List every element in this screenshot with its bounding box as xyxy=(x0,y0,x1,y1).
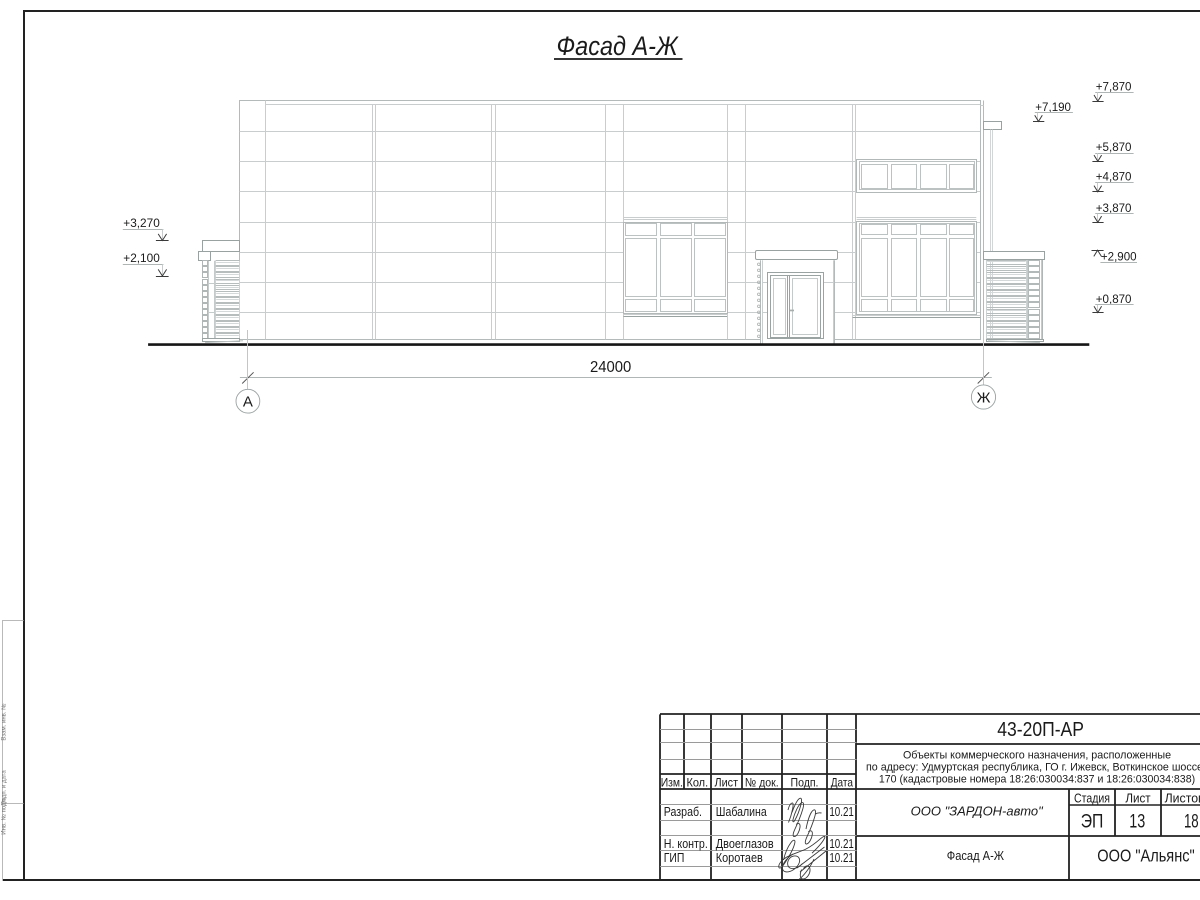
svg-text:+7,870: +7,870 xyxy=(1096,79,1132,93)
svg-text:170 (кадастровые номера 18:26:: 170 (кадастровые номера 18:26:030034:837… xyxy=(879,774,1195,786)
svg-text:Дата: Дата xyxy=(831,775,853,789)
svg-text:+2,100: +2,100 xyxy=(123,251,160,265)
svg-text:Листов: Листов xyxy=(1165,791,1200,806)
svg-text:Коротаев: Коротаев xyxy=(716,850,763,865)
svg-text:ГИП: ГИП xyxy=(664,850,685,865)
svg-text:ООО "ЗАРДОН-авто": ООО "ЗАРДОН-авто" xyxy=(911,804,1044,819)
svg-text:+5,870: +5,870 xyxy=(1096,140,1132,154)
svg-text:Взам. инв. №: Взам. инв. № xyxy=(1,703,8,740)
svg-text:Ж: Ж xyxy=(977,389,991,406)
svg-text:Объекты коммерческого назначен: Объекты коммерческого назначения, распол… xyxy=(903,749,1171,761)
svg-text:24000: 24000 xyxy=(590,359,632,376)
svg-text:Н. контр.: Н. контр. xyxy=(664,836,708,851)
svg-text:18: 18 xyxy=(1184,812,1199,833)
svg-text:Кол.: Кол. xyxy=(686,775,708,789)
svg-text:Двоеглазов: Двоеглазов xyxy=(716,836,774,851)
svg-text:ЭП: ЭП xyxy=(1081,812,1104,833)
svg-text:по адресу: Удмуртская республи: по адресу: Удмуртская республика, ГО г. … xyxy=(866,762,1200,774)
svg-text:+0,870: +0,870 xyxy=(1096,292,1132,306)
svg-text:10.21: 10.21 xyxy=(829,804,854,819)
svg-text:Инв. № подл.: Инв. № подл. xyxy=(1,797,8,835)
svg-text:Стадия: Стадия xyxy=(1074,791,1110,806)
svg-text:Лист: Лист xyxy=(715,775,739,789)
svg-text:+4,870: +4,870 xyxy=(1096,170,1132,184)
svg-text:№ док.: № док. xyxy=(745,775,779,789)
svg-text:Подп.: Подп. xyxy=(791,775,819,789)
svg-text:Разраб.: Разраб. xyxy=(664,804,702,819)
svg-text:Фасад А-Ж: Фасад А-Ж xyxy=(947,849,1005,863)
svg-text:+2,900: +2,900 xyxy=(1101,249,1137,263)
svg-text:10.21: 10.21 xyxy=(829,836,854,851)
svg-text:Шабалина: Шабалина xyxy=(716,804,768,819)
svg-text:ООО "Альянс": ООО "Альянс" xyxy=(1097,846,1194,866)
svg-text:+3,870: +3,870 xyxy=(1096,201,1132,215)
svg-text:Изм.: Изм. xyxy=(661,775,683,789)
svg-text:Фасад А-Ж: Фасад А-Ж xyxy=(557,31,680,61)
svg-text:А: А xyxy=(243,393,253,410)
svg-text:13: 13 xyxy=(1129,812,1145,833)
svg-text:10.21: 10.21 xyxy=(829,850,854,865)
svg-text:Лист: Лист xyxy=(1125,791,1150,806)
svg-text:+3,270: +3,270 xyxy=(123,216,160,230)
svg-text:+7,190: +7,190 xyxy=(1035,100,1071,114)
svg-text:43-20П-АР: 43-20П-АР xyxy=(997,719,1084,741)
